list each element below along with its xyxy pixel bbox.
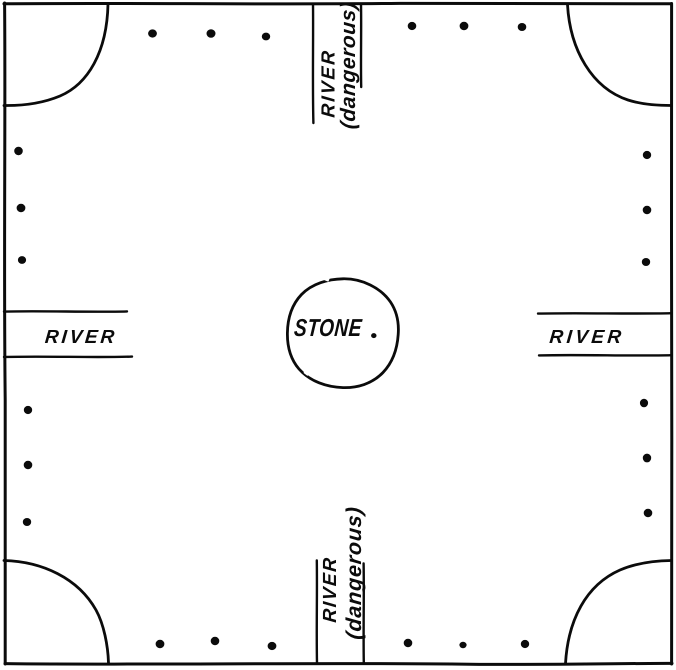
svg-text:(dangerous): (dangerous) [337,1,360,130]
svg-text:RIVER: RIVER [320,556,341,624]
svg-text:STONE: STONE [293,314,364,342]
svg-text:RIVER: RIVER [44,327,118,348]
svg-text:RIVER: RIVER [549,327,626,348]
svg-text:(dangerous): (dangerous) [342,505,366,640]
